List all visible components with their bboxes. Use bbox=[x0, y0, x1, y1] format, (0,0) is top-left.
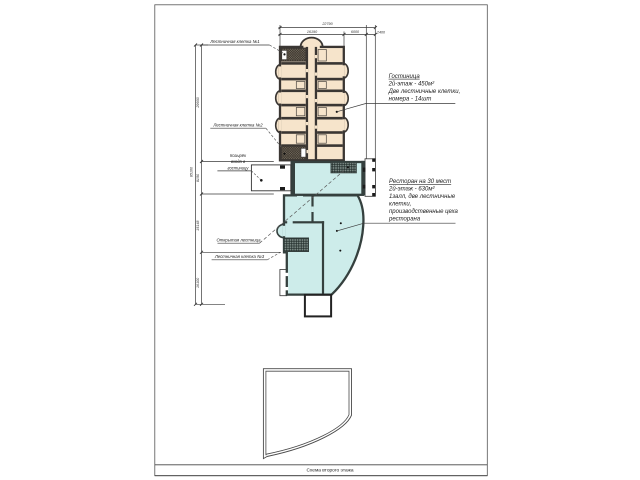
svg-text:2й-этаж - 630м²: 2й-этаж - 630м² bbox=[388, 186, 435, 193]
svg-text:Лестничная клетка №2: Лестничная клетка №2 bbox=[212, 122, 263, 127]
svg-text:производственные цеха: производственные цеха bbox=[389, 209, 459, 215]
svg-text:номера - 14шт: номера - 14шт bbox=[389, 96, 432, 102]
svg-text:2400: 2400 bbox=[376, 31, 386, 35]
svg-text:ресторана: ресторана bbox=[388, 217, 421, 223]
svg-text:входа в: входа в bbox=[231, 159, 246, 164]
svg-text:6000: 6000 bbox=[351, 30, 360, 34]
svg-text:Две лестничные клетки,: Две лестничные клетки, bbox=[388, 89, 461, 95]
svg-text:Схема второго этажа: Схема второго этажа bbox=[306, 468, 353, 474]
svg-text:16100: 16100 bbox=[196, 277, 200, 288]
svg-text:Лестничная клетка №1: Лестничная клетка №1 bbox=[209, 39, 260, 44]
svg-text:гостиницу: гостиницу bbox=[228, 166, 250, 171]
svg-text:1залл, две лестничные: 1залл, две лестничные bbox=[389, 194, 456, 200]
svg-text:15148: 15148 bbox=[196, 220, 200, 231]
svg-text:Ресторан на 30 мест: Ресторан на 30 мест bbox=[389, 179, 451, 185]
svg-text:2й-этаж - 450м²: 2й-этаж - 450м² bbox=[388, 80, 435, 87]
svg-text:клетки,: клетки, bbox=[389, 202, 411, 208]
svg-text:16190: 16190 bbox=[307, 30, 318, 34]
svg-text:29930: 29930 bbox=[196, 96, 200, 108]
svg-text:22790: 22790 bbox=[321, 22, 333, 26]
svg-text:Открытая лестница: Открытая лестница bbox=[216, 238, 261, 243]
svg-text:Гостиница: Гостиница bbox=[389, 74, 421, 80]
svg-text:Козырёк: Козырёк bbox=[230, 153, 247, 158]
svg-text:8150: 8150 bbox=[196, 173, 200, 182]
svg-text:Лестничная клетка №3: Лестничная клетка №3 bbox=[214, 254, 265, 259]
svg-text:85160: 85160 bbox=[190, 166, 194, 177]
